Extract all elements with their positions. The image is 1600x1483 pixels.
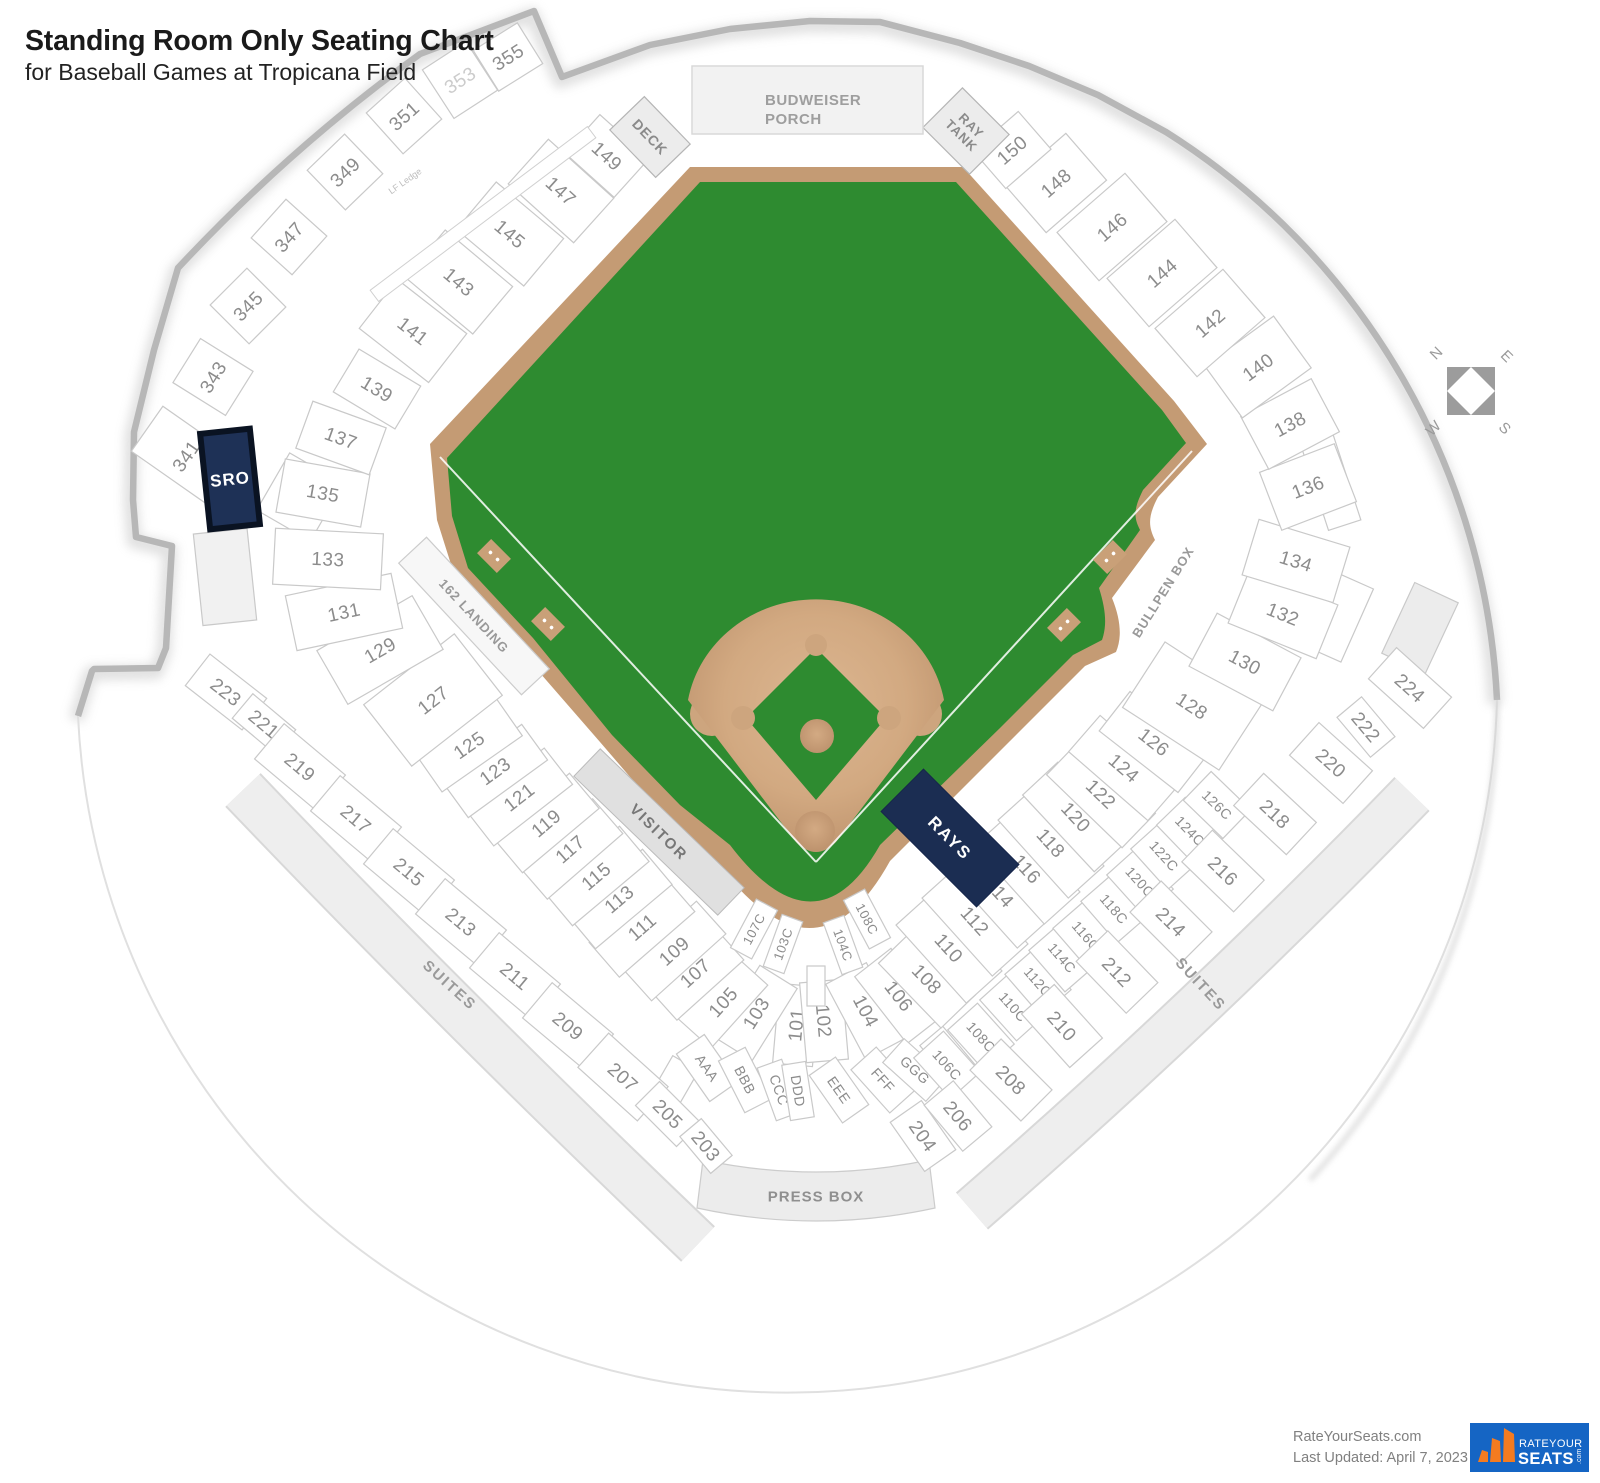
svg-text:BUDWEISER: BUDWEISER xyxy=(765,92,861,109)
svg-text:Last Updated: April 7, 2023: Last Updated: April 7, 2023 xyxy=(1293,1450,1468,1466)
svg-text:.com: .com xyxy=(1576,1449,1583,1464)
svg-text:PRESS BOX: PRESS BOX xyxy=(768,1188,865,1205)
svg-text:PORCH: PORCH xyxy=(765,111,822,128)
svg-text:RATEYOUR: RATEYOUR xyxy=(1519,1438,1583,1450)
svg-text:for Baseball Games at Tropican: for Baseball Games at Tropicana Field xyxy=(25,59,416,85)
svg-text:133: 133 xyxy=(311,549,345,572)
svg-text:SEATS: SEATS xyxy=(1518,1450,1574,1468)
svg-text:RateYourSeats.com: RateYourSeats.com xyxy=(1293,1429,1421,1445)
svg-text:102: 102 xyxy=(811,1004,835,1039)
svg-text:Standing Room Only Seating Cha: Standing Room Only Seating Chart xyxy=(25,25,494,57)
